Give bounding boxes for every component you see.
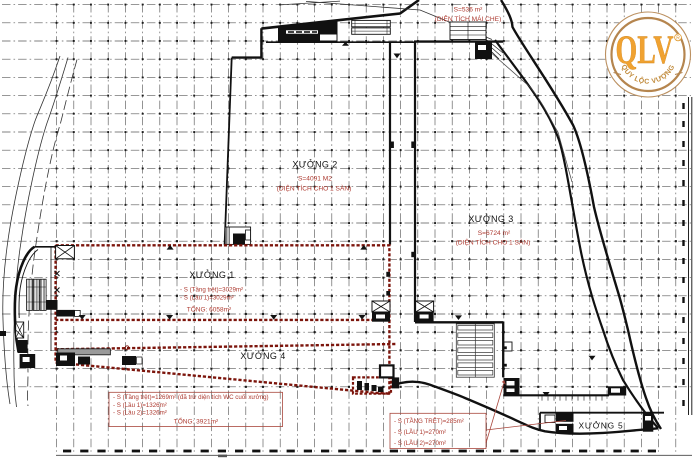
svg-text:S=6724 m²: S=6724 m² [478, 230, 511, 237]
svg-text:S=536 m²: S=536 m² [454, 7, 484, 14]
svg-text:R: R [676, 36, 680, 42]
svg-text:- S (Lầu 1)=3029m²: - S (Lầu 1)=3029m² [180, 295, 234, 302]
svg-text:(DIỆN TÍCH CHO 1 SÀN): (DIỆN TÍCH CHO 1 SÀN) [277, 184, 352, 193]
svg-text:XƯỞNG 5: XƯỞNG 5 [578, 420, 623, 431]
svg-text:- S (TẦNG TRỆT)=285m²: - S (TẦNG TRỆT)=285m² [394, 417, 464, 425]
svg-text:S=4091 M2: S=4091 M2 [298, 176, 332, 183]
svg-text:(DIỆN TÍCH CHO 1 SÀN): (DIỆN TÍCH CHO 1 SÀN) [456, 238, 531, 247]
svg-text:- S (Lầu 2)=1326m²: - S (Lầu 2)=1326m² [113, 410, 167, 417]
svg-text:- S (LẦU 2)=270m²: - S (LẦU 2)=270m² [394, 440, 446, 447]
svg-text:- S (LẦU 1)=270m²: - S (LẦU 1)=270m² [394, 429, 446, 436]
svg-text:XƯỞNG 2: XƯỞNG 2 [292, 159, 337, 170]
svg-text:- S (Tầng trệt)=1269m² (đã trừ: - S (Tầng trệt)=1269m² (đã trừ diện tích… [113, 394, 269, 401]
svg-text:XƯỞNG 1: XƯỞNG 1 [189, 269, 234, 280]
svg-text:- S (Tầng trệt)=3029m²: - S (Tầng trệt)=3029m² [180, 287, 243, 294]
svg-text:- S (Lầu 1)=1326m²: - S (Lầu 1)=1326m² [113, 402, 167, 409]
svg-text:XƯỞNG 3: XƯỞNG 3 [468, 213, 513, 224]
svg-text:XƯỞNG 4: XƯỞNG 4 [240, 350, 285, 361]
svg-text:TỔNG: 6058m²: TỔNG: 6058m² [187, 305, 232, 314]
svg-text:(DIỆN TÍCH MÁI CHE): (DIỆN TÍCH MÁI CHE) [435, 14, 502, 23]
svg-text:TỔNG: 3921m²: TỔNG: 3921m² [174, 417, 219, 426]
